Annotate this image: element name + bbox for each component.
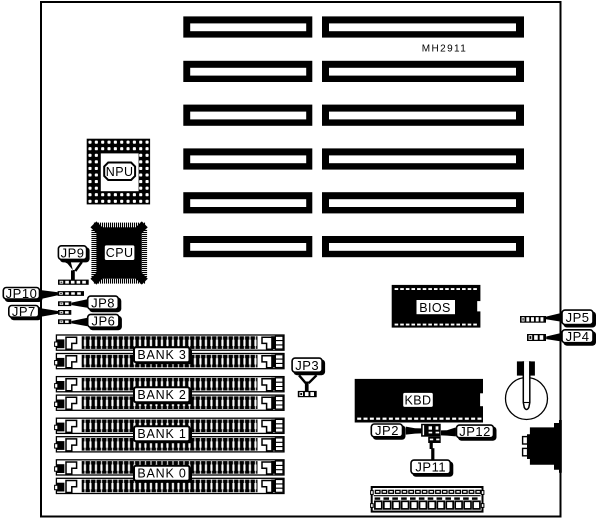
svg-text:JP5: JP5: [566, 310, 590, 325]
svg-text:BANK 2: BANK 2: [137, 388, 186, 402]
svg-text:JP12: JP12: [459, 424, 491, 439]
svg-text:JP8: JP8: [91, 295, 115, 310]
svg-text:CPU: CPU: [106, 246, 134, 260]
svg-text:JP4: JP4: [566, 329, 590, 344]
svg-text:BIOS: BIOS: [419, 301, 450, 315]
svg-text:BANK 1: BANK 1: [137, 427, 186, 441]
svg-text:JP9: JP9: [61, 245, 85, 260]
svg-text:JP3: JP3: [295, 358, 319, 373]
svg-text:BANK 0: BANK 0: [137, 467, 186, 481]
svg-text:MH2911: MH2911: [422, 44, 467, 55]
svg-text:KBD: KBD: [405, 394, 432, 408]
svg-text:JP7: JP7: [12, 304, 36, 319]
svg-text:JP2: JP2: [375, 423, 399, 438]
svg-text:JP10: JP10: [6, 286, 38, 301]
svg-text:NPU: NPU: [106, 165, 134, 179]
svg-text:JP6: JP6: [91, 314, 115, 329]
svg-text:BANK 3: BANK 3: [137, 348, 186, 362]
svg-text:JP11: JP11: [415, 460, 446, 475]
